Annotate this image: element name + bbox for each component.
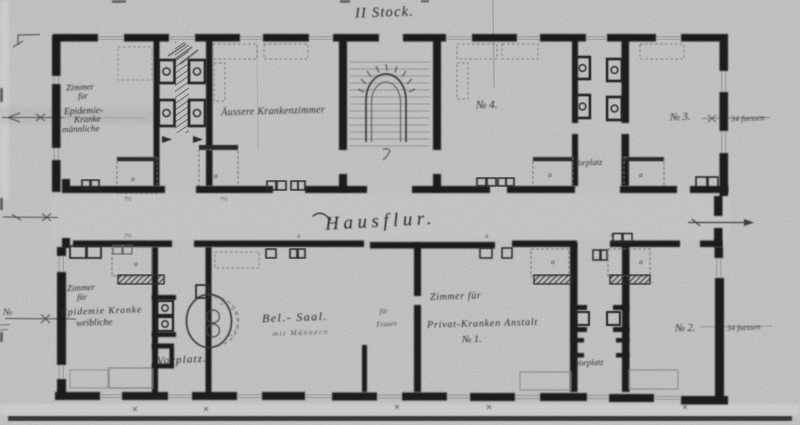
svg-text:Vorplatz: Vorplatz — [575, 357, 604, 368]
svg-text:Zimmer für: Zimmer für — [430, 290, 482, 303]
svg-text:a: a — [551, 257, 555, 266]
svg-text:34 fuessen: 34 fuessen — [726, 322, 761, 332]
svg-text:7½: 7½ — [124, 196, 132, 203]
svg-text:№ 2.: № 2. — [674, 323, 696, 335]
svg-text:a: a — [131, 174, 135, 183]
svg-text:7½: 7½ — [220, 196, 228, 203]
svg-text:a: a — [639, 257, 643, 266]
svg-text:Bel.- Saal.: Bel.- Saal. — [262, 309, 328, 325]
svg-text:weibliche: weibliche — [76, 318, 113, 329]
svg-text:№ 3.: № 3. — [669, 112, 691, 124]
svg-text:№ 1.: № 1. — [461, 334, 482, 346]
svg-text:№: № — [2, 307, 12, 318]
svg-text:a: a — [548, 170, 552, 179]
svg-text:für: für — [78, 90, 89, 101]
svg-text:Vorplatz: Vorplatz — [574, 157, 603, 168]
svg-text:№ 4.: № 4. — [475, 99, 498, 112]
svg-text:4: 4 — [297, 233, 300, 240]
svg-text:für: für — [77, 291, 88, 302]
svg-text:7½: 7½ — [124, 233, 132, 240]
svg-text:a: a — [134, 259, 138, 268]
svg-text:a: a — [214, 171, 218, 180]
svg-text:34 fuessen: 34 fuessen — [730, 113, 765, 123]
svg-text:für: für — [379, 307, 388, 316]
svg-text:II Stock.: II Stock. — [354, 4, 415, 22]
svg-text:männliche: männliche — [62, 123, 100, 134]
svg-text:Frauen: Frauen — [375, 319, 398, 329]
svg-text:a: a — [639, 170, 643, 179]
svg-text:4.: 4. — [485, 233, 490, 240]
